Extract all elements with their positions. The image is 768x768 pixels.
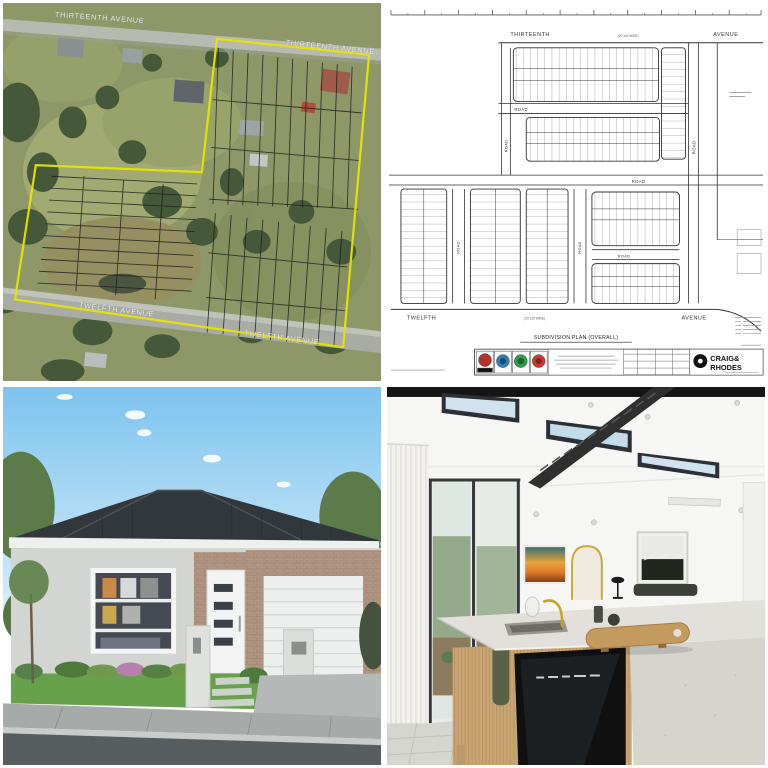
road-label-2: ROAD — [632, 179, 646, 184]
property-collage: THIRTEENTH AVENUE THIRTEENTH AVENUE TWEL… — [0, 0, 768, 768]
plan-title: SUBDIVISION PLAN (OVERALL) — [534, 335, 619, 341]
driveway — [254, 673, 381, 717]
road-label-5: ROAD — [504, 140, 508, 152]
soap-dispenser — [594, 606, 603, 623]
framed-artwork — [638, 532, 688, 584]
title-block-text-box — [548, 349, 624, 375]
title-block: CRAIG& RHODES — [475, 349, 763, 375]
sofa-through-window — [100, 638, 160, 649]
sheer-curtains — [387, 443, 429, 724]
aerial-photo-canvas: THIRTEENTH AVENUE THIRTEENTH AVENUE TWEL… — [3, 3, 381, 381]
sofa-back — [634, 584, 698, 596]
craig-rhodes-logo: CRAIG& RHODES — [689, 349, 763, 375]
glass-carafe — [525, 597, 539, 617]
dishwasher — [514, 648, 625, 765]
aerial-site-photo: THIRTEENTH AVENUE THIRTEENTH AVENUE TWEL… — [3, 3, 381, 381]
road-label-1: ROAD — [514, 107, 528, 112]
plan-street-twelfth: TWELFTH — [407, 315, 436, 321]
plan-canvas: THIRTEENTH (20.115 WIDE) AVENUE — [387, 3, 765, 381]
road-label-6: ROAD — [457, 241, 461, 253]
stone-waterfall-end — [630, 638, 765, 765]
plan-street-thirteenth-avenue: AVENUE — [713, 32, 738, 38]
plan-street-twelfth-avenue: AVENUE — [681, 315, 706, 321]
kitchen-canvas — [387, 387, 765, 765]
sunset-artwork — [524, 546, 566, 583]
craig-rhodes-line1: CRAIG& — [710, 354, 740, 363]
house-render-photo — [3, 387, 381, 765]
front-window — [91, 568, 177, 654]
island-leg — [457, 745, 466, 765]
house-canvas — [3, 387, 381, 765]
plan-street-thirteenth-width: (20.115 WIDE) — [618, 34, 639, 38]
road-label-3: ROAD — [618, 255, 630, 259]
front-door — [207, 570, 245, 673]
wall-vent — [668, 498, 720, 507]
arch-mirror — [572, 546, 602, 600]
road-label-7: ROAD — [578, 241, 582, 253]
hand-towel — [492, 644, 509, 706]
plan-street-thirteenth: THIRTEENTH — [510, 32, 550, 38]
craig-rhodes-line2: RHODES — [710, 363, 742, 372]
kitchen-interior-photo — [387, 387, 765, 765]
mailbox-pillar-left — [186, 626, 210, 708]
subdivision-plan-drawing: THIRTEENTH (20.115 WIDE) AVENUE — [387, 3, 765, 381]
canister — [608, 614, 620, 626]
road-label-4: ROAD — [691, 141, 696, 155]
plan-street-twelfth-width: (20.115 WIDE) — [524, 316, 545, 320]
plan-title-group: SUBDIVISION PLAN (OVERALL) — [520, 335, 631, 342]
kitchen-island — [437, 597, 765, 765]
